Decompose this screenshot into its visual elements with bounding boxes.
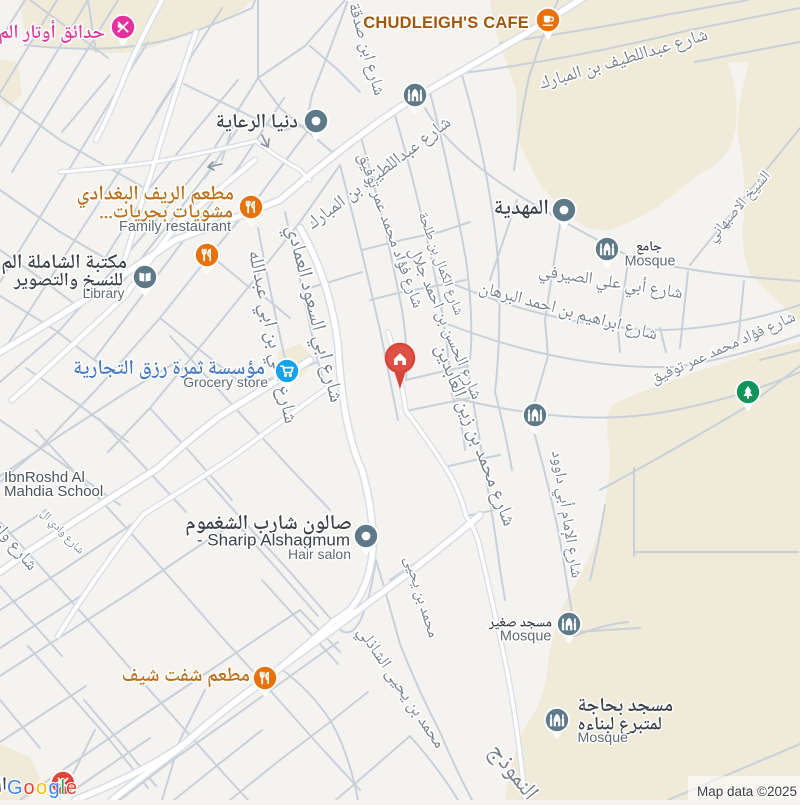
- svg-text:Mahdia School: Mahdia School: [4, 483, 103, 500]
- svg-text:Grocery store: Grocery store: [183, 374, 268, 390]
- svg-text:o: o: [24, 777, 35, 799]
- svg-text:Mosque: Mosque: [625, 254, 676, 270]
- svg-text:Hair salon: Hair salon: [288, 546, 351, 562]
- svg-text:o: o: [36, 777, 47, 799]
- svg-text:l: l: [61, 777, 65, 799]
- svg-text:CHUDLEIGH'S CAFE: CHUDLEIGH'S CAFE: [363, 14, 529, 32]
- svg-text:G: G: [7, 777, 23, 799]
- svg-text:Map data ©2025: Map data ©2025: [697, 784, 797, 799]
- svg-text:e: e: [66, 777, 77, 799]
- svg-text:Mosque: Mosque: [578, 730, 629, 746]
- svg-text:g: g: [49, 777, 60, 799]
- svg-text:Mosque: Mosque: [500, 629, 552, 645]
- svg-text:Library: Library: [83, 286, 125, 301]
- svg-text:Family restaurant: Family restaurant: [119, 219, 231, 235]
